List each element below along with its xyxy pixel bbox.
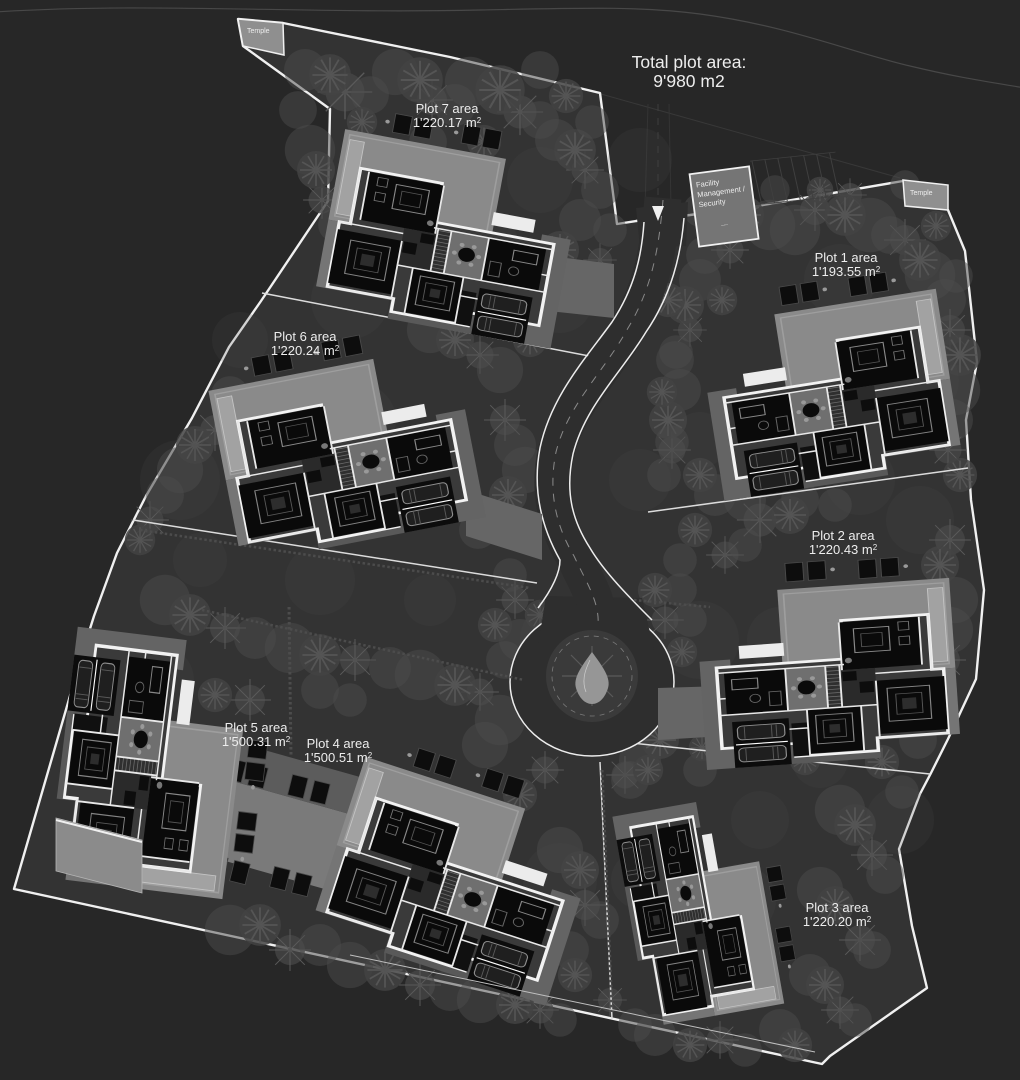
svg-text:Total plot area:: Total plot area: — [632, 52, 747, 72]
svg-text:1'220.43 m2: 1'220.43 m2 — [809, 542, 878, 557]
svg-text:1'193.55 m2: 1'193.55 m2 — [812, 264, 881, 279]
svg-text:1'500.51 m2: 1'500.51 m2 — [304, 750, 373, 765]
svg-text:Plot 6 area: Plot 6 area — [274, 329, 338, 344]
svg-text:Plot 5 area: Plot 5 area — [225, 720, 289, 735]
svg-text:1'220.24 m2: 1'220.24 m2 — [271, 343, 340, 358]
svg-text:Plot 4 area: Plot 4 area — [307, 736, 371, 751]
svg-text:Temple: Temple — [910, 190, 933, 197]
svg-text:Plot 2 area: Plot 2 area — [812, 528, 876, 543]
svg-text:1'220.17 m2: 1'220.17 m2 — [413, 115, 482, 130]
svg-text:Plot 3 area: Plot 3 area — [806, 900, 870, 915]
svg-text:1'500.31 m2: 1'500.31 m2 — [222, 734, 291, 749]
svg-text:9'980 m2: 9'980 m2 — [653, 71, 724, 91]
svg-text:Temple: Temple — [247, 28, 270, 35]
svg-text:1'220.20 m2: 1'220.20 m2 — [803, 914, 872, 929]
svg-text:Plot 1 area: Plot 1 area — [815, 250, 879, 265]
svg-text:Plot 7 area: Plot 7 area — [416, 101, 480, 116]
